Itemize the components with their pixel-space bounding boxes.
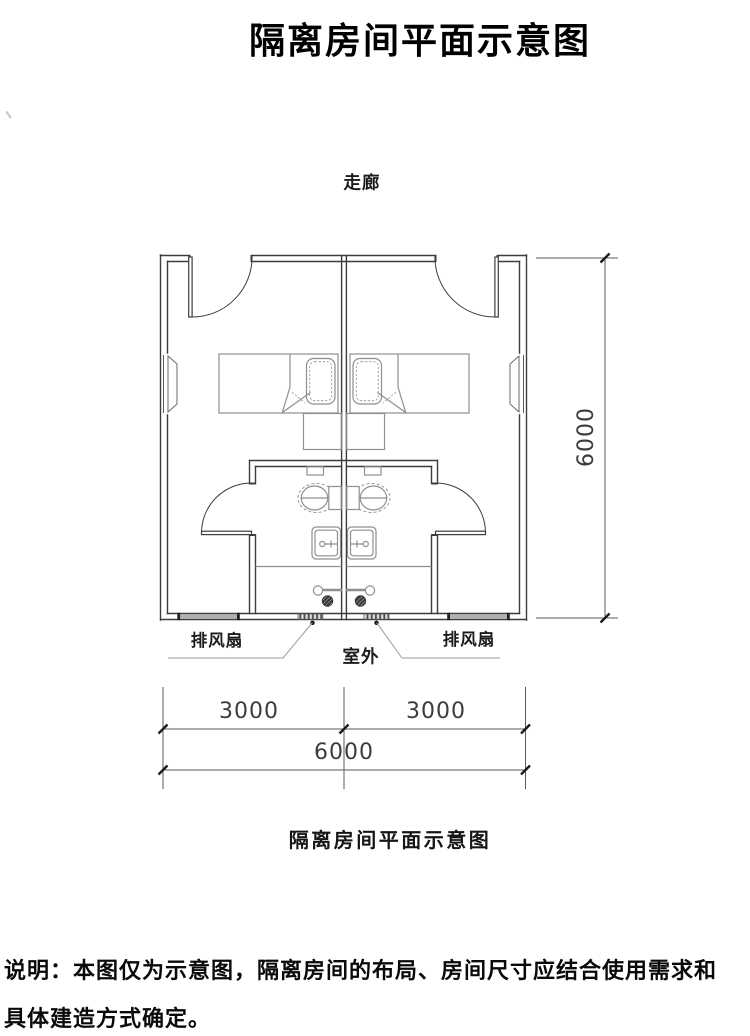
figure-caption: 隔离房间平面示意图 bbox=[30, 824, 750, 853]
dimension-total-height: 6000 bbox=[576, 407, 598, 467]
floor-drain-right bbox=[355, 596, 366, 607]
note-text: 说明：本图仅为示意图，隔离房间的布局、房间尺寸应结合使用需求和 具体建造方式确定… bbox=[4, 947, 748, 1036]
toilet-right bbox=[347, 467, 390, 513]
exhaust-fan-left-label: 排风扇 bbox=[191, 633, 244, 650]
bathroom-door-left bbox=[202, 483, 252, 535]
window-right bbox=[510, 355, 524, 413]
dimension-width bbox=[159, 687, 531, 789]
nightstand-right bbox=[347, 414, 385, 450]
floor-drain-left bbox=[322, 596, 333, 607]
bathroom-walls bbox=[250, 461, 438, 614]
nightstand-left bbox=[304, 414, 342, 450]
outdoor-label: 室外 bbox=[343, 648, 380, 666]
outer-walls bbox=[161, 255, 527, 620]
window-left bbox=[164, 355, 178, 413]
center-partition-wall bbox=[342, 256, 347, 620]
sink-right bbox=[348, 527, 377, 559]
pillow-right bbox=[353, 359, 382, 405]
page: 隔离房间平面示意图 bbox=[0, 0, 750, 1036]
floor-plan-drawing bbox=[0, 0, 750, 1036]
toilet-left bbox=[298, 467, 341, 513]
dimension-right-room-width: 3000 bbox=[406, 701, 466, 723]
shower-left bbox=[313, 586, 341, 595]
exhaust-fan-left-symbol bbox=[298, 614, 323, 625]
bed-left bbox=[219, 354, 338, 413]
pillow-left bbox=[307, 359, 336, 405]
bathroom-door-right bbox=[436, 483, 486, 535]
entry-door-left bbox=[189, 257, 252, 317]
shower-right bbox=[347, 586, 375, 595]
entry-door-right bbox=[435, 257, 498, 317]
note-line-1: 说明：本图仅为示意图，隔离房间的布局、房间尺寸应结合使用需求和 bbox=[4, 947, 748, 995]
corridor-label: 走廊 bbox=[344, 174, 381, 192]
sink-left bbox=[312, 527, 341, 559]
note-line-2: 具体建造方式确定。 bbox=[4, 995, 748, 1036]
dimension-total-width: 6000 bbox=[314, 742, 374, 764]
bed-right bbox=[350, 354, 469, 413]
exhaust-fan-right-label: 排风扇 bbox=[443, 632, 496, 649]
dimension-left-room-width: 3000 bbox=[219, 701, 279, 723]
